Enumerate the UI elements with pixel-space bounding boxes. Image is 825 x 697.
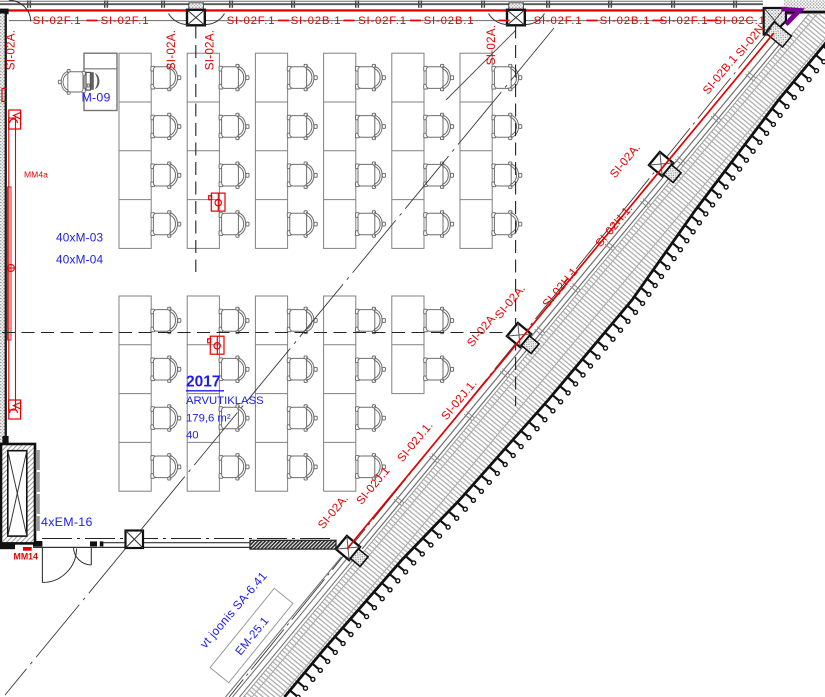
svg-text:2017: 2017 [186,374,220,391]
svg-text:SI-02A.: SI-02A. [5,30,18,70]
svg-text:SI-02A.: SI-02A. [165,30,178,70]
svg-text:SI-02A.: SI-02A. [485,25,498,65]
svg-text:SI-02F.1: SI-02F.1 [534,15,583,27]
svg-text:SI-02A.: SI-02A. [204,30,217,70]
svg-text:SI-02F.1: SI-02F.1 [227,15,276,27]
svg-text:SI-02F.1: SI-02F.1 [660,15,709,27]
svg-text:SI-02F.1: SI-02F.1 [358,15,407,27]
svg-text:4xEM-16: 4xEM-16 [41,515,93,529]
svg-text:SI-02F.1: SI-02F.1 [33,15,82,27]
svg-text:MM14: MM14 [14,552,39,562]
svg-text:SI-02F.1: SI-02F.1 [101,15,150,27]
svg-text:40xM-04: 40xM-04 [56,253,104,267]
svg-text:40xM-03: 40xM-03 [56,231,104,245]
svg-text:179,6 m²: 179,6 m² [186,413,231,425]
svg-text:SI-02B.1: SI-02B.1 [291,15,342,27]
svg-text:SI-02B.1: SI-02B.1 [600,15,651,27]
svg-text:40: 40 [186,430,199,442]
svg-text:ARVUTIKLASS: ARVUTIKLASS [186,395,264,407]
svg-text:MM4a: MM4a [24,170,48,180]
svg-text:SI-02B.1: SI-02B.1 [424,15,475,27]
svg-text:M-09: M-09 [82,91,111,105]
